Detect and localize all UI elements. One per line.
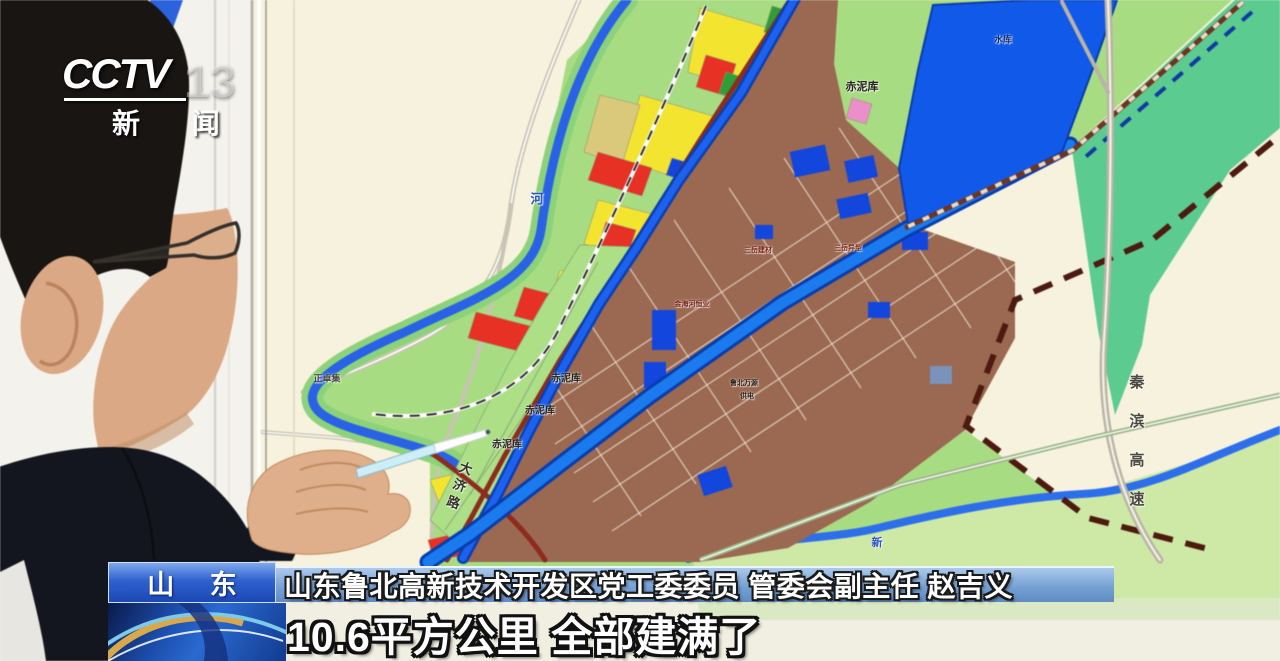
planning-map [248, 0, 1280, 661]
pen-point [486, 430, 490, 434]
bottom-haze [276, 598, 1280, 661]
logo-underline [64, 98, 186, 101]
channel-name: 新 闻 [112, 102, 242, 142]
tv-news-frame: 赤泥库赤泥库赤泥库赤泥库水库河新正卓集三岳建材三岳异型金海河恒业鲁北万源供电大济… [0, 0, 1280, 661]
channel-number: 13 [184, 54, 235, 108]
cctv-logo-text: CCTV [62, 50, 168, 98]
